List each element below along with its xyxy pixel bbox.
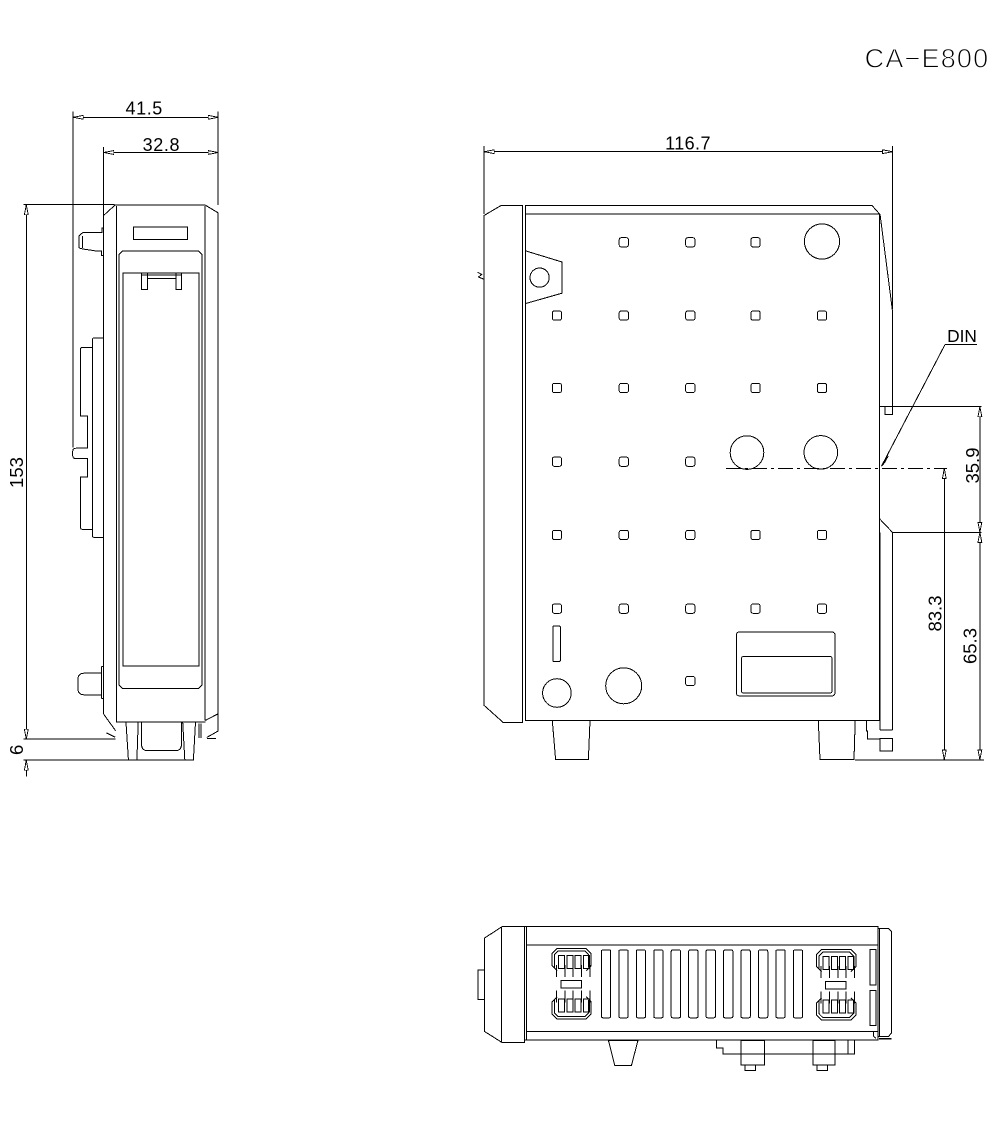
svg-text:CA−E800: CA−E800 xyxy=(865,44,990,74)
svg-text:83.3: 83.3 xyxy=(925,595,946,631)
svg-text:116.7: 116.7 xyxy=(665,133,711,153)
svg-text:65.3: 65.3 xyxy=(959,628,980,664)
svg-text:41.5: 41.5 xyxy=(125,99,162,119)
svg-text:32.8: 32.8 xyxy=(143,135,180,155)
svg-text:DIN: DIN xyxy=(947,326,977,346)
svg-text:153: 153 xyxy=(6,457,27,488)
svg-text:6: 6 xyxy=(6,745,27,755)
svg-text:35.9: 35.9 xyxy=(962,447,983,483)
